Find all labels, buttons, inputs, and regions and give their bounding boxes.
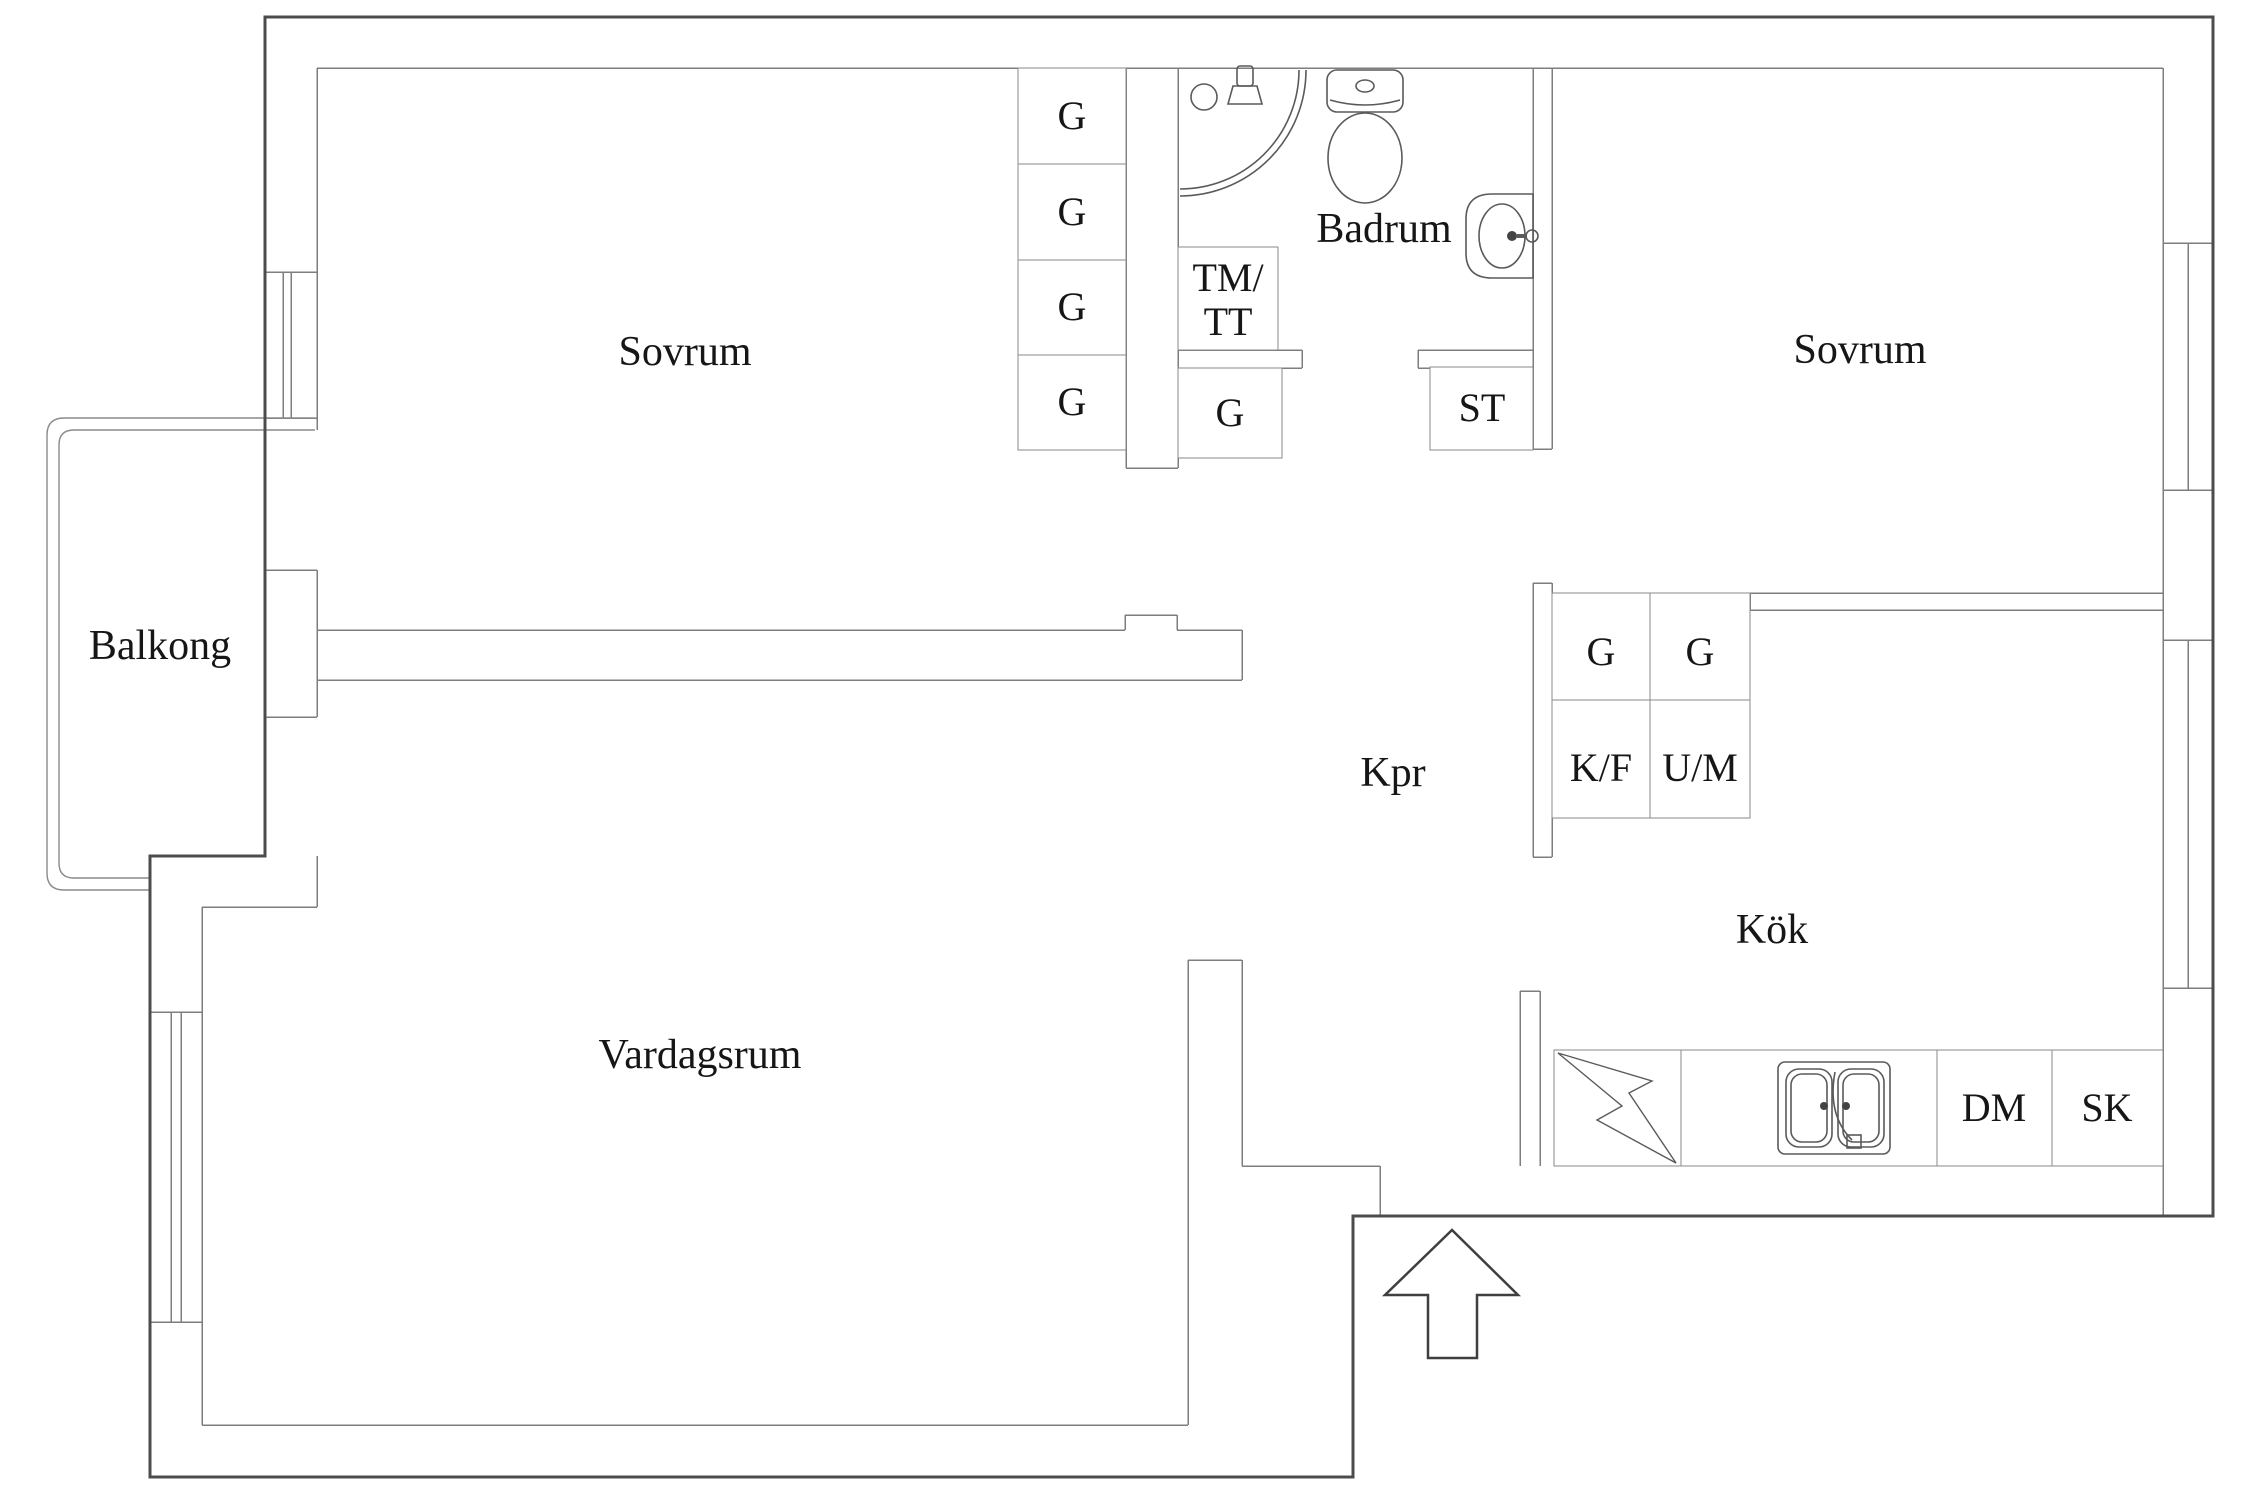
cabinet-boxes bbox=[1018, 68, 2163, 1166]
kitchen-cabinet-label: SK bbox=[2081, 1085, 2132, 1130]
hall-unit-label-g1: G bbox=[1587, 629, 1616, 674]
wall-bathroom-stub-left bbox=[1178, 350, 1302, 368]
wall-livingroom-bottom-inner bbox=[202, 1322, 1188, 1425]
wall-bathroom-stub-right bbox=[1418, 350, 1533, 368]
window-kitchen-right bbox=[2163, 640, 2213, 988]
washbasin-icon bbox=[1466, 194, 1538, 278]
wall-bedroom2-bottom bbox=[1750, 593, 2163, 610]
window-bedroom1-left bbox=[265, 272, 317, 418]
washer-dryer-label-line1: TM/ bbox=[1192, 255, 1264, 300]
window-livingroom-left bbox=[150, 1012, 202, 1322]
hall-unit-label-kf: K/F bbox=[1570, 745, 1632, 790]
washer-dryer-label-line2: TT bbox=[1204, 299, 1253, 344]
wall-hall-divider bbox=[1188, 960, 1380, 1425]
wall-closet-strip bbox=[1533, 583, 1552, 857]
wall-bathroom-left bbox=[1126, 68, 1178, 468]
room-label-bedroom-right: Sovrum bbox=[1793, 327, 1926, 373]
room-label-corridor: Kpr bbox=[1360, 750, 1425, 796]
wall-left-pier-lower bbox=[265, 680, 317, 717]
floorplan-drawing: Sovrum Sovrum Badrum Balkong Vardagsrum … bbox=[0, 0, 2250, 1500]
kitchen-dishwasher-label: DM bbox=[1962, 1085, 2026, 1130]
floorplan-page: Sovrum Sovrum Badrum Balkong Vardagsrum … bbox=[0, 0, 2250, 1500]
shower-icon bbox=[1180, 66, 1306, 196]
room-label-bathroom: Badrum bbox=[1316, 206, 1452, 252]
room-label-kitchen: Kök bbox=[1736, 907, 1808, 953]
wall-left-pier-upper bbox=[265, 570, 317, 630]
wall-band-bedroom1-livingroom bbox=[317, 615, 1242, 680]
wardrobe-label-1: G bbox=[1058, 93, 1087, 138]
wardrobe-label-2: G bbox=[1058, 189, 1087, 234]
fixtures bbox=[1180, 66, 1890, 1163]
entry-arrow-icon bbox=[1385, 1230, 1518, 1358]
room-label-bedroom-left: Sovrum bbox=[618, 329, 751, 375]
wardrobe-label-4: G bbox=[1058, 379, 1087, 424]
window-bedroom2-right bbox=[2163, 243, 2213, 490]
toilet-icon bbox=[1327, 70, 1403, 203]
cleaning-closet-label: ST bbox=[1459, 385, 1506, 430]
hall-unit-label-um: U/M bbox=[1662, 745, 1738, 790]
room-label-living-room: Vardagsrum bbox=[599, 1032, 802, 1078]
hall-wardrobe-label: G bbox=[1216, 390, 1245, 435]
hall-unit-label-g2: G bbox=[1686, 629, 1715, 674]
wall-livingroom-corner bbox=[202, 856, 317, 1012]
outer-boundary-wall bbox=[150, 17, 2213, 1477]
wardrobe-label-3: G bbox=[1058, 284, 1087, 329]
wall-kitchen-divider bbox=[1520, 991, 1540, 1166]
wall-bedroom2-left bbox=[1533, 68, 1552, 449]
room-label-balcony: Balkong bbox=[89, 623, 231, 669]
